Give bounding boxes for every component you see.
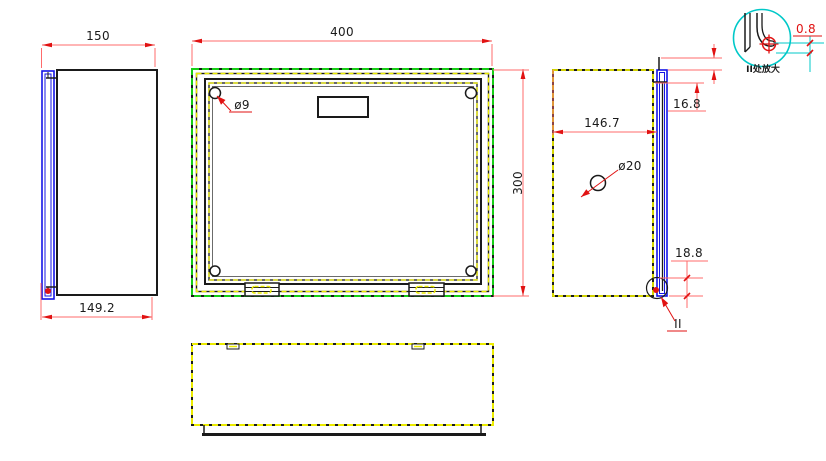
detail-ii-dot xyxy=(653,287,659,293)
dim-168-arrow-up xyxy=(712,70,717,80)
left-view-body xyxy=(57,70,157,295)
left-view-door-strip-outer xyxy=(42,71,54,299)
corner-hole-top-right xyxy=(466,88,477,99)
label-ii-text: II xyxy=(670,317,686,331)
corner-hole-bottom-right xyxy=(466,266,476,276)
dim-08-text: 0.8 xyxy=(792,22,820,36)
dim-400-arrow-right xyxy=(482,39,492,44)
bottom-view-outline-yellow xyxy=(192,344,493,425)
left-side-view xyxy=(42,70,157,299)
hinge-right xyxy=(409,283,444,296)
detail-view-caption: II处放大 xyxy=(734,62,792,75)
front-view-dimensions xyxy=(192,39,529,296)
right-side-view xyxy=(553,57,668,299)
dim-400-arrow-left xyxy=(192,39,202,44)
dim-150-arrow-right xyxy=(145,43,155,48)
corner-hole-bottom-left xyxy=(210,266,220,276)
drawing-linework xyxy=(0,0,826,461)
dim-400-text: 400 xyxy=(322,25,362,39)
leader-d20-arrow xyxy=(581,189,590,197)
detail-hem-inner-curve xyxy=(762,13,772,41)
dim-149-arrow-right xyxy=(142,315,152,320)
hinge-left-body xyxy=(245,283,279,296)
dim-150-arrow-left xyxy=(42,43,52,48)
dim-149-text: 149.2 xyxy=(72,301,122,315)
left-view-door-strip-inner xyxy=(45,74,51,296)
left-view-dimensions xyxy=(41,43,155,320)
label-d20-text: ø20 xyxy=(614,159,646,173)
dim-168-arrow-down xyxy=(712,48,717,58)
corner-hole-top-left xyxy=(210,88,221,99)
right-view-body-base xyxy=(553,70,653,296)
hinge-right-body xyxy=(409,283,444,296)
dim-149-arrow-left xyxy=(42,315,52,320)
hinge-left xyxy=(245,283,279,296)
dim-188-text: 18.8 xyxy=(672,246,706,260)
leader-ii-arrow xyxy=(661,297,668,307)
dim-168-arrow-up2 xyxy=(695,83,700,93)
dim-300-text: 300 xyxy=(511,165,525,201)
dim-1467-arrow-left xyxy=(553,130,563,135)
bottom-view-outline-base xyxy=(192,344,493,425)
left-view-detail-dot xyxy=(45,288,51,294)
bottom-view xyxy=(192,344,493,435)
dim-150-text: 150 xyxy=(78,29,118,43)
right-view-dimensions xyxy=(553,44,722,331)
right-view-body-yellow xyxy=(553,70,653,296)
datum-target-icon xyxy=(760,35,779,54)
dim-168-text: 16.8 xyxy=(670,97,704,111)
drawing-canvas: 150 149.2 400 300 ø9 146.7 ø20 16.8 18.8… xyxy=(0,0,826,461)
dim-300-arrow-bottom xyxy=(521,286,526,296)
front-top-cutout xyxy=(318,97,368,117)
dim-1467-text: 146.7 xyxy=(578,116,626,130)
label-d9-text: ø9 xyxy=(230,98,254,112)
